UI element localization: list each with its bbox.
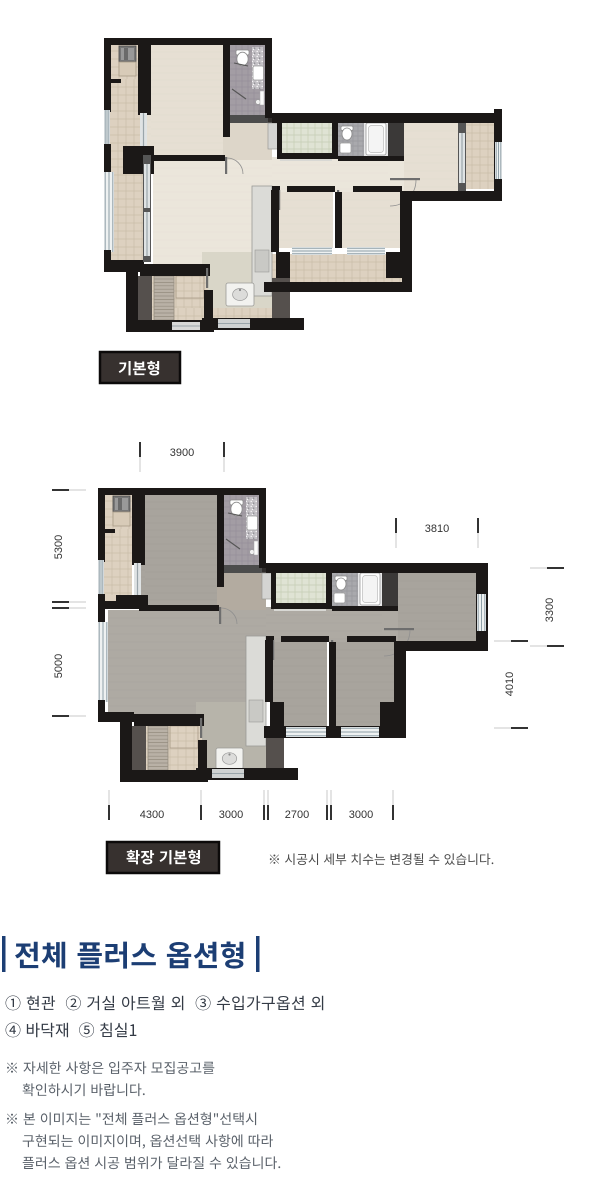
svg-text:2700: 2700 [285, 809, 309, 821]
svg-text:3900: 3900 [170, 447, 194, 459]
svg-text:5300: 5300 [53, 535, 65, 559]
svg-text:5000: 5000 [53, 654, 65, 678]
svg-text:4300: 4300 [140, 809, 164, 821]
svg-text:3810: 3810 [425, 523, 449, 535]
svg-text:3000: 3000 [349, 809, 373, 821]
svg-text:3000: 3000 [219, 809, 243, 821]
svg-text:3300: 3300 [544, 598, 556, 622]
svg-text:4010: 4010 [504, 672, 516, 696]
